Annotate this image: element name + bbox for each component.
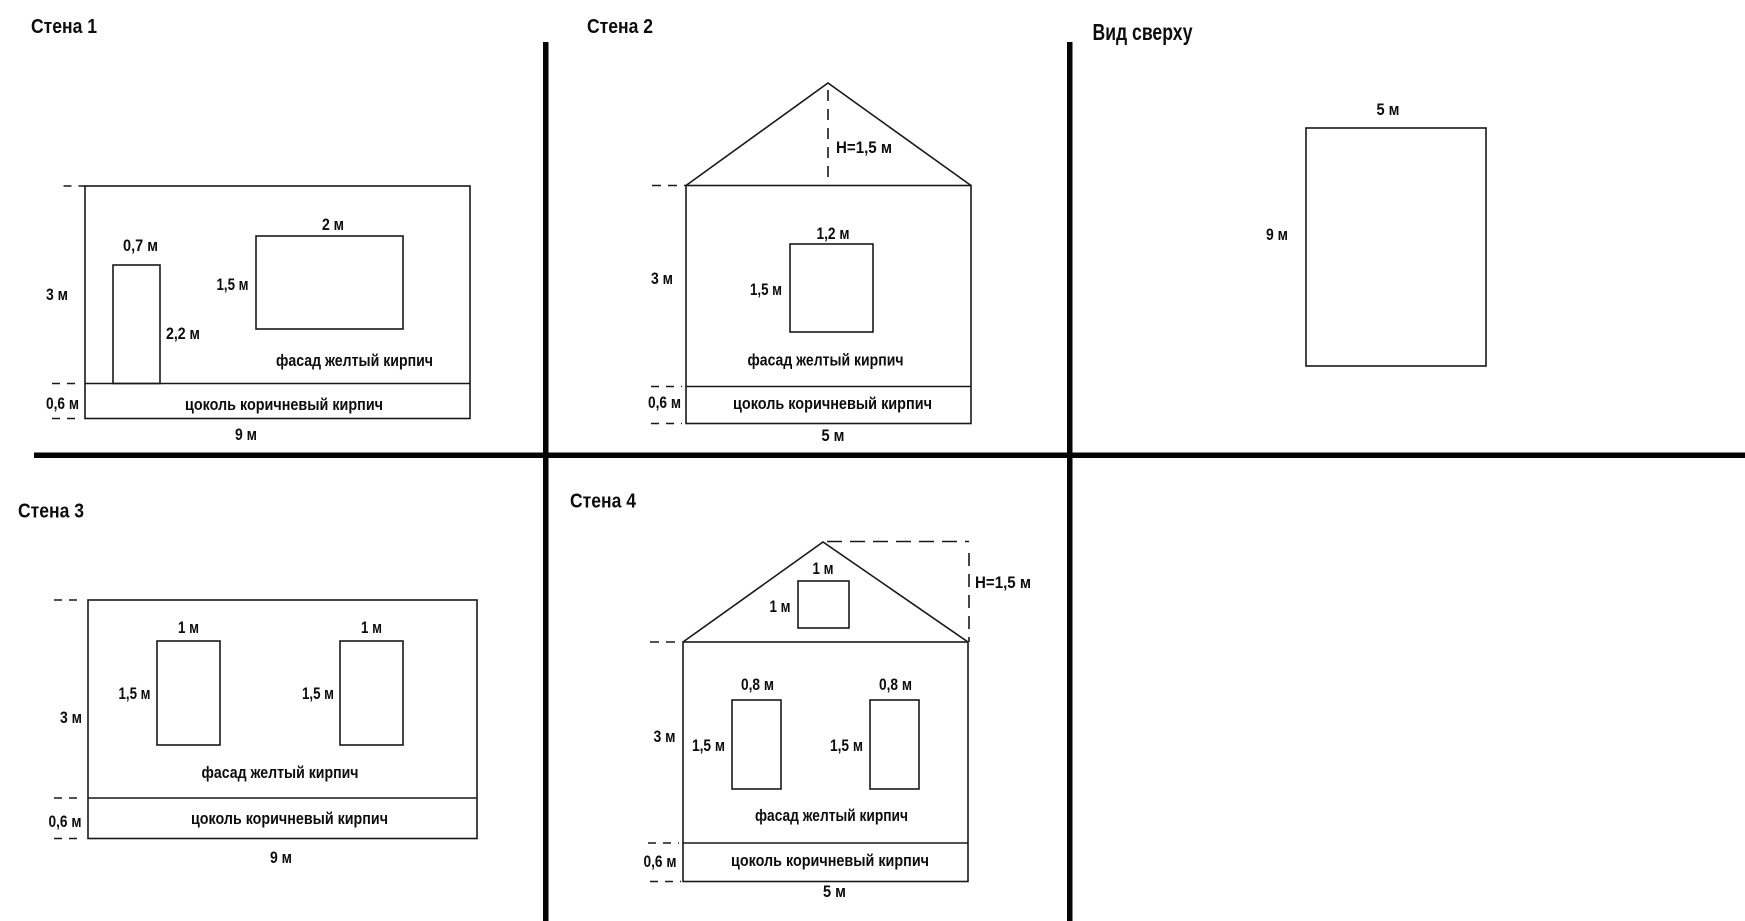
svg-text:Стена 4: Стена 4 (570, 491, 637, 513)
svg-text:0,7 м: 0,7 м (123, 236, 158, 255)
svg-text:фасад желтый кирпич: фасад желтый кирпич (755, 806, 908, 825)
svg-text:1,5 м: 1,5 м (692, 736, 725, 755)
svg-text:5 м: 5 м (822, 426, 845, 445)
svg-text:0,8 м: 0,8 м (741, 675, 774, 694)
svg-text:1,5 м: 1,5 м (830, 736, 863, 755)
svg-text:9 м: 9 м (270, 848, 292, 867)
svg-text:3 м: 3 м (46, 285, 68, 304)
svg-text:цоколь коричневый кирпич: цоколь коричневый кирпич (733, 394, 932, 413)
svg-text:1 м: 1 м (770, 597, 791, 616)
svg-text:9 м: 9 м (235, 425, 257, 444)
svg-text:цоколь коричневый кирпич: цоколь коричневый кирпич (185, 395, 383, 414)
svg-text:9 м: 9 м (1266, 225, 1288, 244)
svg-text:2 м: 2 м (322, 215, 344, 234)
svg-text:3 м: 3 м (654, 727, 676, 746)
svg-text:0,6 м: 0,6 м (648, 393, 681, 412)
svg-text:0,6 м: 0,6 м (46, 394, 79, 413)
svg-text:Н=1,5 м: Н=1,5 м (836, 138, 892, 157)
svg-text:1,5 м: 1,5 м (750, 280, 782, 299)
svg-text:фасад желтый кирпич: фасад желтый кирпич (202, 763, 359, 782)
svg-text:фасад желтый кирпич: фасад желтый кирпич (748, 351, 904, 370)
svg-text:Стена 1: Стена 1 (31, 16, 97, 38)
svg-text:2,2 м: 2,2 м (166, 324, 200, 343)
svg-text:1 м: 1 м (813, 559, 834, 578)
svg-text:Стена 2: Стена 2 (587, 16, 653, 38)
svg-text:1 м: 1 м (178, 618, 199, 637)
svg-text:3 м: 3 м (60, 708, 82, 727)
svg-text:Вид сверху: Вид сверху (1093, 19, 1193, 45)
svg-text:Н=1,5 м: Н=1,5 м (975, 573, 1031, 592)
svg-text:1,2 м: 1,2 м (817, 224, 850, 243)
svg-text:Стена 3: Стена 3 (18, 501, 84, 523)
svg-text:1,5 м: 1,5 м (217, 275, 249, 294)
svg-text:цоколь коричневый кирпич: цоколь коричневый кирпич (731, 851, 929, 870)
svg-text:0,8 м: 0,8 м (879, 675, 912, 694)
svg-text:1,5 м: 1,5 м (119, 684, 151, 703)
svg-text:1,5 м: 1,5 м (302, 684, 334, 703)
svg-text:5 м: 5 м (823, 882, 846, 901)
svg-text:1 м: 1 м (361, 618, 382, 637)
svg-text:0,6 м: 0,6 м (49, 812, 82, 831)
svg-text:цоколь коричневый кирпич: цоколь коричневый кирпич (191, 809, 388, 828)
svg-text:фасад желтый кирпич: фасад желтый кирпич (276, 351, 433, 370)
svg-text:0,6 м: 0,6 м (644, 852, 677, 871)
svg-text:3 м: 3 м (651, 269, 673, 288)
svg-text:5 м: 5 м (1377, 100, 1400, 119)
